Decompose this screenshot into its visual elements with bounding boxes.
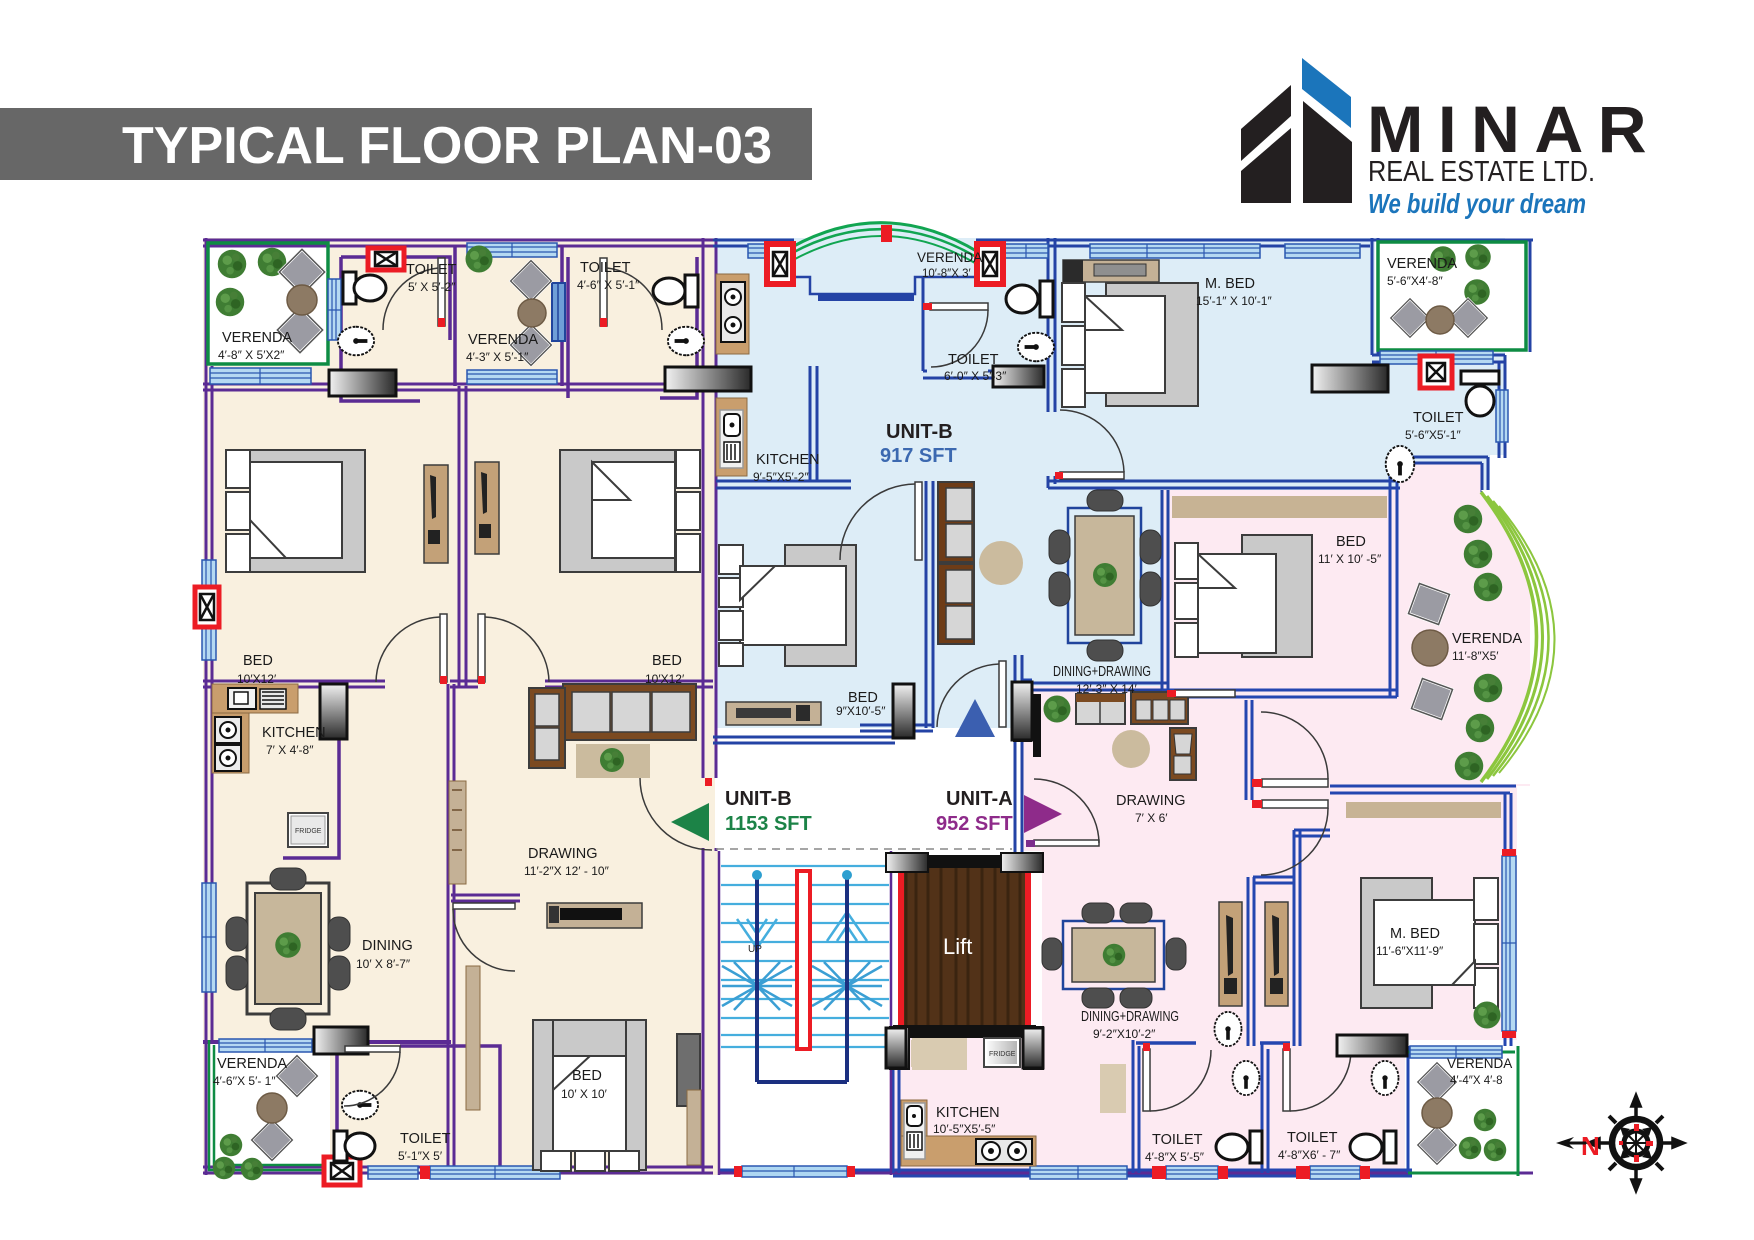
svg-text:VERENDA: VERENDA <box>1452 631 1522 647</box>
svg-text:VERENDA: VERENDA <box>1387 256 1457 272</box>
svg-text:UNIT-B: UNIT-B <box>886 421 953 443</box>
svg-text:10′X12′: 10′X12′ <box>645 672 685 686</box>
svg-text:MINAR: MINAR <box>1367 92 1661 166</box>
svg-text:917 SFT: 917 SFT <box>880 445 957 467</box>
svg-text:10′-8″X 3′: 10′-8″X 3′ <box>922 268 971 280</box>
svg-text:We build your dream: We build your dream <box>1368 188 1586 219</box>
svg-text:9′-2″X10′-2″: 9′-2″X10′-2″ <box>1093 1027 1156 1041</box>
svg-text:KITCHEN: KITCHEN <box>262 725 326 741</box>
svg-text:4′-4″X 4′-8: 4′-4″X 4′-8 <box>1450 1075 1503 1087</box>
svg-text:952 SFT: 952 SFT <box>936 813 1013 835</box>
svg-text:UNIT-A: UNIT-A <box>946 788 1013 810</box>
svg-text:TOILET: TOILET <box>1152 1132 1203 1148</box>
svg-text:5′-1″X 5′: 5′-1″X 5′ <box>398 1149 443 1163</box>
svg-text:4′-6′′X 5′- 1″: 4′-6′′X 5′- 1″ <box>213 1074 276 1088</box>
svg-text:TOILET: TOILET <box>400 1131 451 1147</box>
svg-text:BED: BED <box>1336 534 1366 550</box>
svg-text:BED: BED <box>572 1068 602 1084</box>
svg-text:KITCHEN: KITCHEN <box>756 452 820 468</box>
svg-text:12′-3″ X 14′: 12′-3″ X 14′ <box>1076 682 1138 696</box>
svg-text:5′-6″X5′-1″: 5′-6″X5′-1″ <box>1405 428 1461 442</box>
svg-text:7′ X 6′: 7′ X 6′ <box>1135 811 1168 825</box>
svg-text:10′-5″X5′-5″: 10′-5″X5′-5″ <box>933 1122 996 1136</box>
svg-text:VERENDA: VERENDA <box>1447 1056 1512 1071</box>
svg-text:4′-3″ X 5′-1″: 4′-3″ X 5′-1″ <box>466 350 529 364</box>
svg-text:9′-5″X5′-2″: 9′-5″X5′-2″ <box>753 470 809 484</box>
svg-text:4′-8″X 5′-5″: 4′-8″X 5′-5″ <box>1145 1150 1205 1164</box>
svg-text:10′ X 10′: 10′ X 10′ <box>561 1087 608 1101</box>
svg-text:FRIDGE: FRIDGE <box>989 1051 1016 1058</box>
svg-text:DINING+DRAWING: DINING+DRAWING <box>1081 1009 1179 1025</box>
svg-text:10′ X 8′-7″: 10′ X 8′-7″ <box>356 957 411 971</box>
svg-text:VERENDA: VERENDA <box>217 1056 287 1072</box>
svg-text:11′-2″X 12′ - 10″: 11′-2″X 12′ - 10″ <box>524 864 610 878</box>
svg-text:M. BED: M. BED <box>1205 276 1255 292</box>
svg-text:11′ X 10′ -5″: 11′ X 10′ -5″ <box>1318 552 1382 566</box>
svg-text:5′ X 5′-2″: 5′ X 5′-2″ <box>408 280 456 294</box>
svg-text:TOILET: TOILET <box>948 352 999 368</box>
svg-text:1153 SFT: 1153 SFT <box>725 813 812 835</box>
svg-text:15′-1″ X 10′-1″: 15′-1″ X 10′-1″ <box>1196 294 1272 308</box>
svg-text:4′-6″ X 5′-1″: 4′-6″ X 5′-1″ <box>577 278 640 292</box>
svg-text:4′-8″X6′ - 7″: 4′-8″X6′ - 7″ <box>1278 1148 1341 1162</box>
svg-text:BED: BED <box>243 653 273 669</box>
svg-text:4′-8″ X 5′X2″: 4′-8″ X 5′X2″ <box>218 348 285 362</box>
svg-text:5′-6″X4′-8″: 5′-6″X4′-8″ <box>1387 274 1443 288</box>
svg-text:VERENDA: VERENDA <box>222 330 292 346</box>
svg-text:DRAWING: DRAWING <box>1116 793 1186 809</box>
svg-text:6′-0″ X 5′-3″: 6′-0″ X 5′-3″ <box>944 369 1007 383</box>
svg-text:N: N <box>1581 1131 1600 1161</box>
svg-text:UNIT-B: UNIT-B <box>725 788 792 810</box>
svg-text:TOILET: TOILET <box>1287 1130 1338 1146</box>
svg-text:TYPICAL FLOOR PLAN-03: TYPICAL FLOOR PLAN-03 <box>122 117 772 175</box>
svg-text:DINING: DINING <box>362 938 413 954</box>
svg-text:DINING+DRAWING: DINING+DRAWING <box>1053 664 1151 680</box>
svg-text:Lift: Lift <box>943 934 972 959</box>
svg-text:11′-6″X11′-9″: 11′-6″X11′-9″ <box>1376 944 1444 958</box>
svg-text:TOILET: TOILET <box>580 260 631 276</box>
svg-text:REAL ESTATE LTD.: REAL ESTATE LTD. <box>1368 156 1595 188</box>
svg-text:TOILET: TOILET <box>406 262 457 278</box>
svg-text:KITCHEN: KITCHEN <box>936 1105 1000 1121</box>
svg-text:VERENDA: VERENDA <box>917 250 982 265</box>
svg-text:VERENDA: VERENDA <box>468 332 538 348</box>
svg-text:M. BED: M. BED <box>1390 926 1440 942</box>
svg-text:TOILET: TOILET <box>1413 410 1464 426</box>
svg-text:FRIDGE: FRIDGE <box>295 828 322 835</box>
svg-text:BED: BED <box>652 653 682 669</box>
svg-text:DRAWING: DRAWING <box>528 846 598 862</box>
svg-text:UP: UP <box>748 944 762 955</box>
svg-text:11′-8″X5′: 11′-8″X5′ <box>1452 649 1499 663</box>
svg-text:10′X12′: 10′X12′ <box>237 672 277 686</box>
svg-text:9″X10′-5″: 9″X10′-5″ <box>836 704 886 718</box>
svg-text:7′ X 4′-8″: 7′ X 4′-8″ <box>266 743 314 757</box>
